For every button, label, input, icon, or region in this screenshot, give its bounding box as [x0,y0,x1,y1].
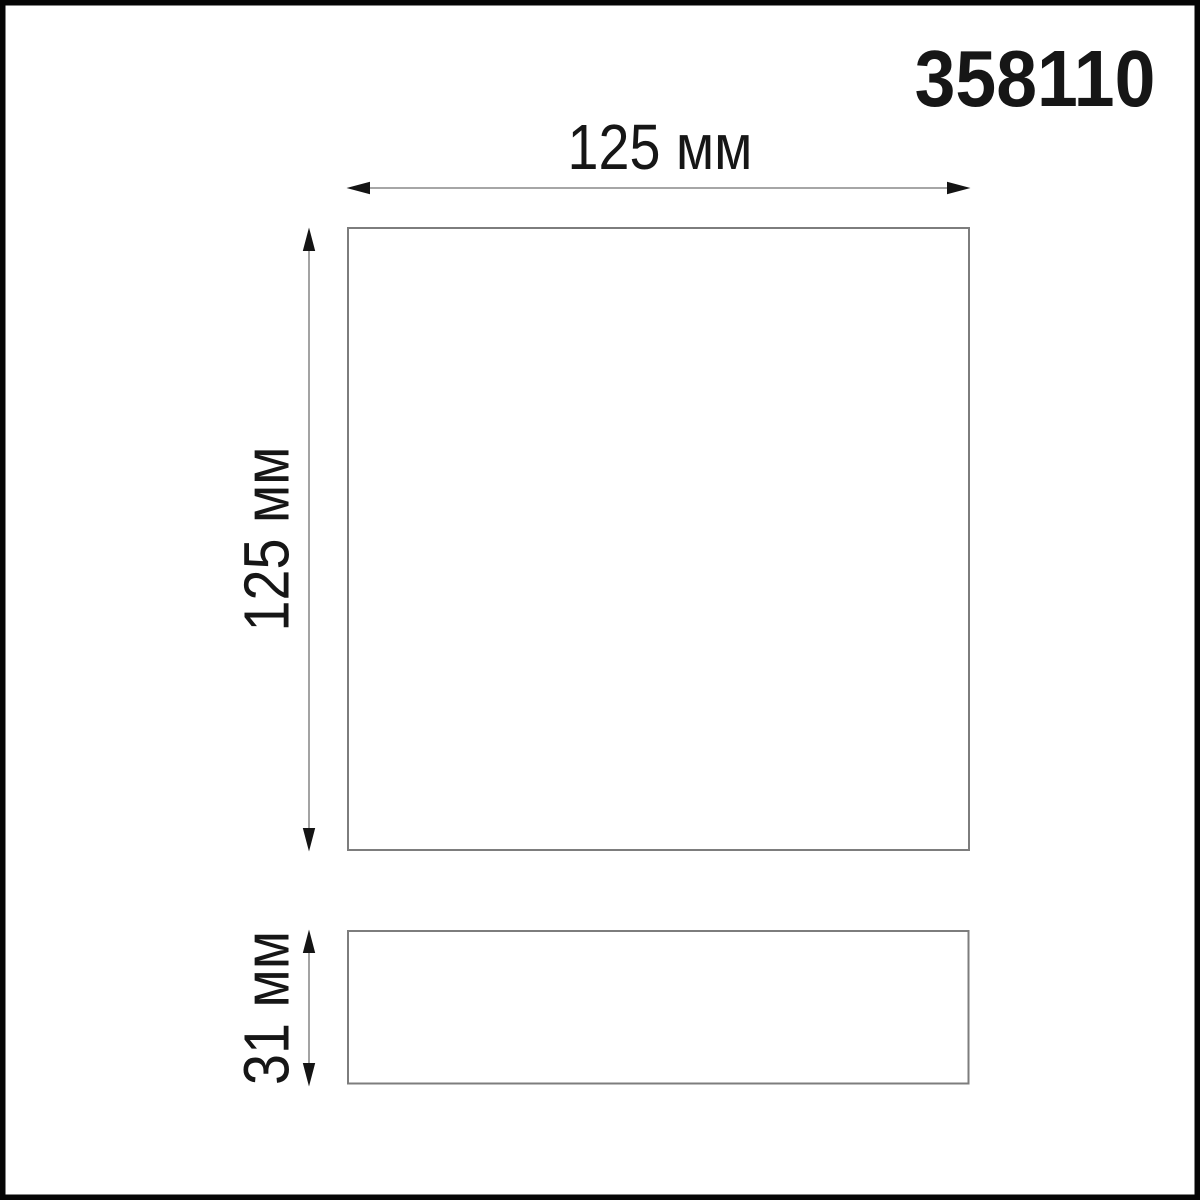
svg-text:125 мм: 125 мм [231,447,302,632]
svg-text:31 мм: 31 мм [231,931,302,1085]
svg-text:125 мм: 125 мм [568,111,753,182]
svg-text:358110: 358110 [915,35,1156,124]
